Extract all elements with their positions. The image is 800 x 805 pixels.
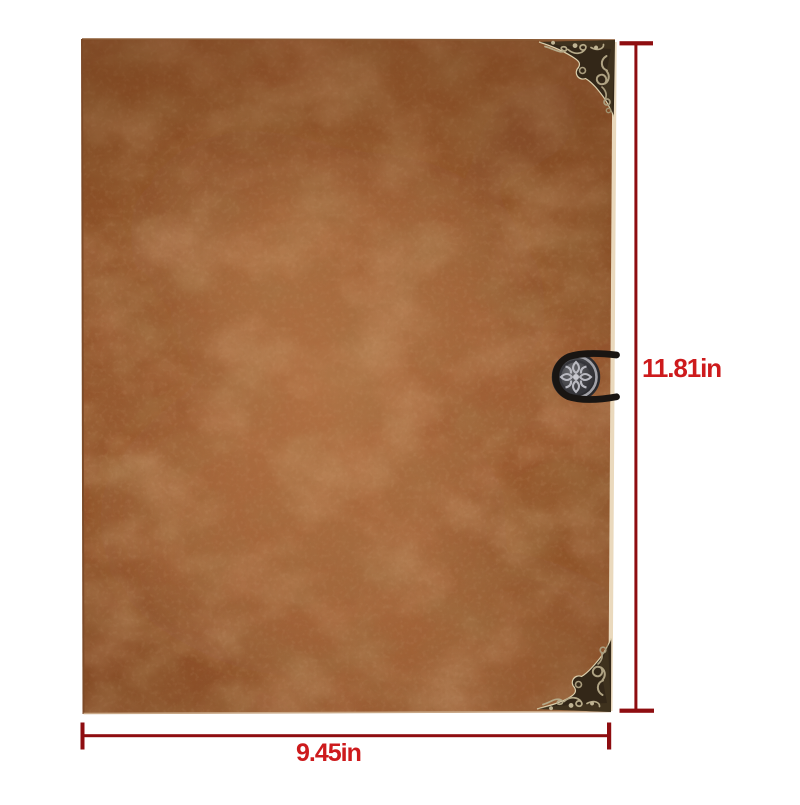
svg-text:9.45in: 9.45in xyxy=(296,739,361,767)
svg-text:11.81in: 11.81in xyxy=(642,353,721,383)
